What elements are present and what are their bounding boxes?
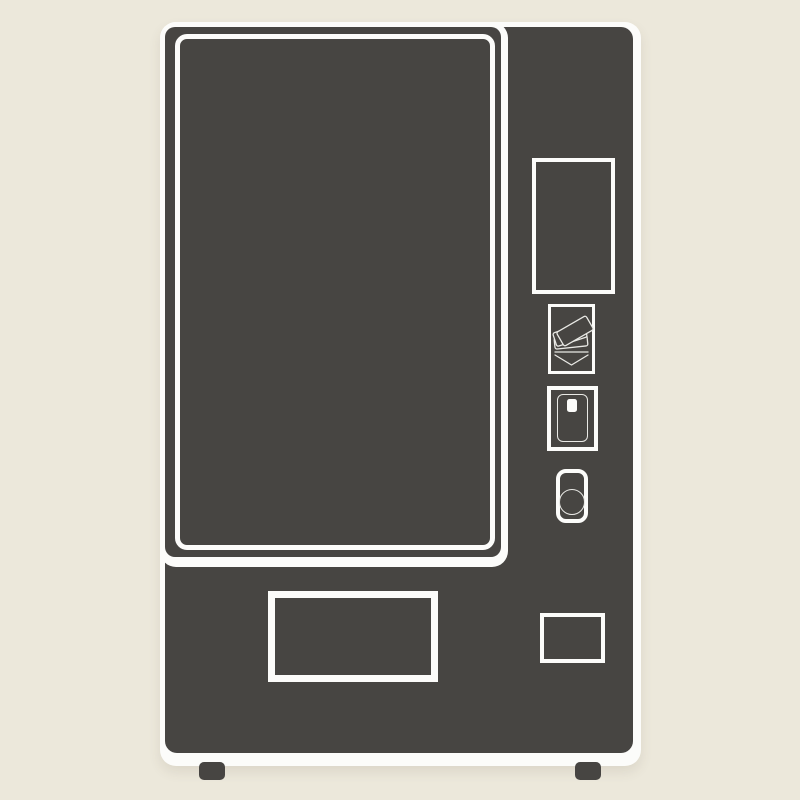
insert-arrow-icon bbox=[555, 352, 588, 365]
banknotes-icon bbox=[548, 304, 595, 374]
product-window-frame bbox=[175, 34, 495, 550]
display-panel bbox=[532, 158, 615, 294]
foot-left bbox=[199, 762, 225, 780]
coin-icon bbox=[559, 489, 585, 515]
dispensing-tray bbox=[268, 591, 438, 682]
illustration-background bbox=[0, 0, 800, 800]
foot-right bbox=[575, 762, 601, 780]
card-chip-icon bbox=[567, 399, 577, 412]
coin-return bbox=[540, 613, 605, 663]
